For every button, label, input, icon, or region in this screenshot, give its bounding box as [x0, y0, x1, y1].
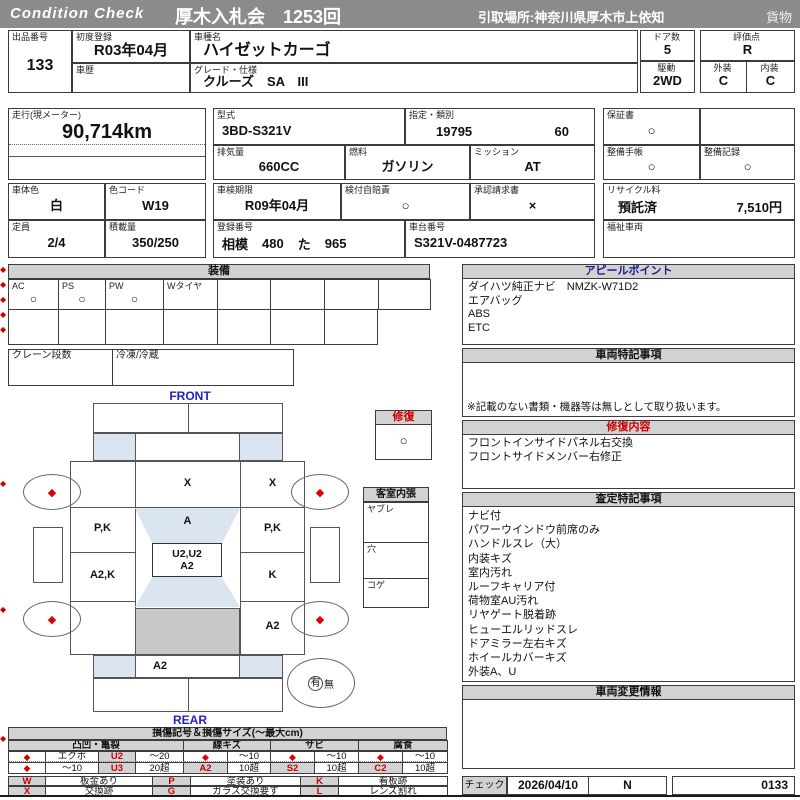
fuel-cell: 燃料 ガソリン: [345, 145, 470, 180]
recycle-amount: 7,510円: [736, 197, 782, 216]
registration-kana: た: [298, 234, 311, 253]
text-line: エアバッグ: [468, 295, 789, 309]
check-code: N: [588, 777, 666, 794]
inspection-expiry-value: R09年04月: [214, 195, 340, 219]
registration-number-label: 登録番号: [214, 221, 404, 232]
equipment-cell-empty: [271, 310, 325, 345]
text-line: フロントインサイドパネル右交換: [468, 437, 789, 451]
text-line: ルーフキャリア付: [468, 580, 789, 594]
hood-corner-left: [94, 434, 136, 460]
fuel-label: 燃料: [346, 146, 469, 157]
interior-lining-title: 客室内張: [364, 488, 428, 502]
grade-value: クルーズ SA III: [191, 75, 637, 92]
legend-code-u2: U2: [99, 751, 136, 762]
equipment-cell-empty: [218, 310, 271, 345]
cargo-area-shaded: [135, 608, 240, 655]
appeal-points-title: アピールポイント: [463, 265, 794, 279]
right-rear-panel-mark: K: [240, 569, 305, 581]
registration-class: 480: [262, 236, 284, 251]
change-info-title: 車両変更情報: [463, 686, 794, 700]
drive-value: 2WD: [641, 73, 694, 92]
spare-tire-yes: 有: [308, 676, 323, 691]
roof-front-mark: A: [135, 515, 240, 527]
chassis-number-label: 車台番号: [406, 221, 594, 232]
capacity-cell: 定員 2/4: [8, 220, 105, 258]
load-capacity-label: 積載量: [106, 221, 205, 232]
equipment-cell-wtire: Wタイヤ: [164, 279, 218, 310]
legend-group-dents: 凸凹・亀裂: [9, 740, 184, 751]
exterior-grade-value: C: [701, 73, 746, 92]
title-bar: Condition Check 厚木入札会 1253回 引取場所:神奈川県厚木市…: [0, 0, 800, 28]
load-capacity-value: 350/250: [106, 232, 205, 257]
registration-digits: 965: [325, 236, 347, 251]
inspection-expiry-cell: 車検期限 R09年04月: [213, 183, 341, 220]
interior-grade-label: 内装: [747, 62, 794, 73]
equipment-label-ac: AC: [9, 280, 58, 291]
equipment-cell-empty: [59, 310, 106, 345]
change-info-panel: 車両変更情報: [462, 685, 795, 769]
equipment-cell-pw: PW ○: [106, 279, 164, 310]
left-front-door-mark: P,K: [70, 522, 135, 534]
body-hline: [70, 552, 135, 553]
text-line: ハンドルスレ（大）: [468, 537, 789, 551]
fridge-cell: 冷凍/冷蔵: [112, 349, 294, 386]
repair-details-panel: 修復内容 フロントインサイドパネル右交換フロントサイドメンバー右修正: [462, 420, 795, 489]
crane-cell: クレーン段数: [8, 349, 113, 386]
windshield-mark: X: [135, 477, 240, 489]
equipment-cell-empty: [271, 279, 325, 310]
score-cell: 評価点 R: [700, 30, 795, 61]
equipment-cell-empty: [325, 279, 379, 310]
text-line: ABS: [468, 308, 789, 322]
fridge-label: 冷凍/冷蔵: [113, 350, 293, 361]
equipment-cell-empty: [325, 310, 378, 345]
drive-label: 駆動: [641, 62, 694, 73]
wheel-damage-mark: ◆: [48, 486, 56, 499]
wheel-front-right: ◆: [291, 474, 349, 510]
class-value-1: 19795: [436, 124, 472, 139]
bottom-divider-line: [0, 795, 800, 797]
legend-group-rust: サビ: [271, 740, 359, 751]
recycle-fee-values: 預託済 7,510円: [604, 195, 794, 219]
first-registration-cell: 初度登録 R03年04月: [72, 30, 190, 63]
first-registration-label: 初度登録: [73, 31, 189, 42]
equipment-label-wtire: Wタイヤ: [164, 280, 217, 291]
maintenance-book-label: 整備手帳: [604, 146, 699, 157]
rear-bumper: [93, 678, 283, 712]
approval-request-label: 承認請求書: [471, 184, 594, 195]
legend-size-value: 10超: [315, 762, 359, 774]
warranty-value: ○: [604, 120, 699, 144]
displacement-cell: 排気量 660CC: [213, 145, 345, 180]
load-capacity-cell: 積載量 350/250: [105, 220, 206, 258]
wheel-rear-left: ◆: [23, 601, 81, 637]
transmission-label: ミッション: [471, 146, 594, 157]
legend-code-c2: C2: [359, 762, 403, 774]
equipment-cell-ps: PS ○: [59, 279, 106, 310]
legend-title: 損傷記号＆損傷サイズ(〜最大cm): [152, 728, 303, 739]
drive-cell: 駆動 2WD: [640, 61, 695, 93]
body-hline: [240, 601, 305, 602]
roof-mark-2: A2: [153, 560, 221, 572]
legend-size-value: 20超: [136, 762, 184, 774]
inspection-expiry-label: 車検期限: [214, 184, 340, 195]
appeal-points-list: ダイハツ純正ナビ NMZK-W71D2エアバッグABSETC: [463, 279, 794, 337]
legend-diamond-icon: ◆: [271, 751, 315, 762]
text-line: ナビ付: [468, 509, 789, 523]
interior-lining-burn-label: コゲ: [364, 579, 428, 590]
mileage-cell: 走行(現メーター) 90,714km: [8, 108, 206, 180]
text-line: 外装A、U: [468, 665, 789, 679]
insurance-cell: 検付自賠責 ○: [341, 183, 470, 220]
body-color-cell: 車体色 白: [8, 183, 105, 220]
legend-size-value: 〜10: [315, 751, 359, 762]
legend-group-corrosion: 腐食: [359, 740, 448, 751]
front-label: FRONT: [145, 389, 235, 403]
equipment-cell-empty: [106, 310, 164, 345]
capacity-value: 2/4: [9, 232, 104, 257]
interior-lining-cell: 穴: [364, 542, 428, 578]
doors-value: 5: [641, 42, 694, 60]
legend-size-value: 〜10: [46, 762, 99, 774]
body-hline: [240, 507, 305, 508]
legend-symbol-row-1: W 板金あり P 塗装あり K 看板跡: [8, 776, 448, 786]
text-line: 内装キズ: [468, 552, 789, 566]
margin-mark-icon: ◆: [0, 480, 6, 488]
assessment-notes-title: 査定特記事項: [463, 493, 794, 507]
exterior-grade-cell: 外装 C: [700, 61, 747, 93]
equipment-mark-ac: ○: [9, 292, 58, 306]
auction-title: 厚木入札会 1253回: [175, 3, 341, 29]
equipment-cell-empty: [164, 310, 218, 345]
margin-mark-icon: ◆: [0, 296, 6, 304]
equipment-cell-ac: AC ○: [9, 279, 59, 310]
legend-desc-sign: 看板跡: [339, 776, 448, 786]
text-line: パワーウインドウ前席のみ: [468, 523, 789, 537]
spare-tire-no: 無: [324, 676, 334, 691]
mileage-label: 走行(現メーター): [9, 109, 205, 120]
recycle-fee-cell: リサイクル料 預託済 7,510円: [603, 183, 795, 220]
rear-corner-right: [239, 656, 282, 677]
fuel-value: ガソリン: [346, 157, 469, 179]
equipment-row-1: AC ○ PS ○ PW ○ Wタイヤ: [8, 279, 431, 310]
text-line: 荷物室AU汚れ: [468, 594, 789, 608]
interior-lining-hole-label: 穴: [364, 543, 428, 554]
mirror-right: [310, 527, 340, 583]
legend-code-p: P: [153, 776, 191, 786]
equipment-label-pw: PW: [106, 280, 163, 291]
wheel-rear-right: ◆: [291, 601, 349, 637]
legend-diamond-icon: ◆: [9, 751, 46, 762]
type-code-label: 型式: [214, 109, 404, 120]
score-label: 評価点: [701, 31, 794, 42]
model-label: 車種名: [191, 31, 637, 42]
legend-diamond-icon: ◆: [184, 751, 228, 762]
color-code-value: W19: [106, 195, 205, 219]
assessment-notes-list: ナビ付パワーウインドウ前席のみハンドルスレ（大）内装キズ室内汚れルーフキャリア付…: [463, 507, 794, 681]
type-code-cell: 型式 3BD-S321V: [213, 108, 405, 145]
legend-group-scratch: 線キズ: [184, 740, 271, 751]
score-value: R: [701, 42, 794, 60]
check-date: 2026/04/10: [508, 777, 588, 794]
roof-panel-box: U2,U2 A2: [152, 543, 222, 577]
vehicle-notes-title: 車両特記事項: [463, 349, 794, 363]
legend-diamond-icon: ◆: [9, 762, 46, 774]
equipment-label-ps: PS: [59, 280, 105, 291]
legend-group-row: 凸凹・亀裂 線キズ サビ 腐食: [8, 740, 448, 751]
body-hline: [70, 507, 135, 508]
lot-number-cell: 出品番号 133: [8, 30, 72, 93]
margin-mark-icon: ◆: [0, 281, 6, 289]
text-line: リヤゲート脱着跡: [468, 608, 789, 622]
model-cell: 車種名 ハイゼットカーゴ: [190, 30, 638, 63]
type-code-value: 3BD-S321V: [214, 120, 404, 144]
body-hline: [135, 507, 240, 508]
legend-code-u3: U3: [99, 762, 136, 774]
text-line: ホイールカバーキズ: [468, 651, 789, 665]
class-value-2: 60: [555, 124, 569, 139]
insurance-value: ○: [342, 195, 469, 219]
color-code-cell: 色コード W19: [105, 183, 206, 220]
registration-number-cell: 登録番号 相模 480 た 965: [213, 220, 405, 258]
class-label: 指定・類別: [406, 109, 594, 120]
maintenance-book-cell: 整備手帳 ○: [603, 145, 700, 180]
appeal-points-panel: アピールポイント ダイハツ純正ナビ NMZK-W71D2エアバッグABSETC: [462, 264, 795, 345]
wheel-damage-mark: ◆: [316, 613, 324, 626]
approval-request-value: ×: [471, 195, 594, 219]
interior-grade-value: C: [747, 73, 794, 92]
grade-label: グレード・仕様: [191, 64, 637, 75]
text-line: ドアミラー左右キズ: [468, 637, 789, 651]
grade-cell: グレード・仕様 クルーズ SA III: [190, 63, 638, 93]
margin-mark-icon: ◆: [0, 311, 6, 319]
mileage-empty-area: [9, 156, 205, 179]
doors-label: ドア数: [641, 31, 694, 42]
transmission-value: AT: [471, 157, 594, 179]
margin-mark-icon: ◆: [0, 606, 6, 614]
warranty-label: 保証書: [604, 109, 699, 120]
model-value: ハイゼットカーゴ: [191, 42, 637, 62]
legend-desc-sheetmetal: 板金あり: [46, 776, 153, 786]
legend-size-value: 〜10: [228, 751, 271, 762]
insurance-label: 検付自賠責: [342, 184, 469, 195]
text-line: ダイハツ純正ナビ NMZK-W71D2: [468, 281, 789, 295]
wheel-damage-mark: ◆: [316, 486, 324, 499]
mileage-value: 90,714km: [9, 120, 205, 144]
registration-number-value: 相模 480 た 965: [214, 232, 404, 257]
repair-flag-box: 修復 ○: [375, 410, 432, 460]
equipment-cell-empty: [9, 310, 59, 345]
interior-lining-cell: ヤブレ: [364, 502, 428, 542]
right-front-door-mark: P,K: [240, 522, 305, 534]
legend-code-w: W: [9, 776, 46, 786]
legend-size-row-2: ◆ 〜10 U3 20超 A2 10超 S2 10超 C2 10超: [8, 762, 448, 774]
interior-lining-cell: コゲ: [364, 578, 428, 608]
margin-mark-icon: ◆: [0, 266, 6, 274]
assessment-notes-panel: 査定特記事項 ナビ付パワーウインドウ前席のみハンドルスレ（大）内装キズ室内汚れル…: [462, 492, 795, 682]
repair-flag-label: 修復: [376, 411, 431, 425]
warranty-cell: 保証書 ○: [603, 108, 700, 145]
interior-lining-tear-label: ヤブレ: [364, 503, 428, 514]
spare-tire-indicator: 有 無: [287, 658, 355, 708]
maintenance-record-cell: 整備記録 ○: [700, 145, 795, 180]
doors-cell: ドア数 5: [640, 30, 695, 61]
check-label-cell: チェック: [462, 776, 507, 795]
vehicle-notes-footnote: ※記載のない書類・機器等は無しとして取り扱います。: [467, 399, 726, 414]
rear-gate-mark: A2: [120, 660, 200, 672]
legend-dimple-label: エクボ: [46, 751, 99, 762]
interior-grade-cell: 内装 C: [746, 61, 795, 93]
legend-code-s2: S2: [271, 762, 315, 774]
maintenance-record-label: 整備記録: [701, 146, 794, 157]
roof-mark-1: U2,U2: [153, 548, 221, 560]
legend-size-value: 10超: [403, 762, 448, 774]
check-number: 0133: [673, 777, 794, 794]
welfare-vehicle-label: 福祉車両: [604, 221, 794, 232]
condition-check-sheet: Condition Check 厚木入札会 1253回 引取場所:神奈川県厚木市…: [0, 0, 800, 800]
rear-label: REAR: [145, 713, 235, 727]
crane-label: クレーン段数: [9, 350, 112, 361]
roof-marks: U2,U2 A2: [153, 544, 221, 572]
wheel-front-left: ◆: [23, 474, 81, 510]
text-line: フロントサイドメンバー右修正: [468, 451, 789, 465]
pickup-location: 引取場所:神奈川県厚木市上依知: [478, 7, 664, 26]
chassis-number-value: S321V-0487723: [406, 232, 594, 257]
equipment-cell-empty: [379, 279, 431, 310]
legend-size-row-1: ◆ エクボ U2 〜20 ◆ 〜10 ◆ 〜10 ◆ 〜10: [8, 751, 448, 762]
margin-mark-icon: ◆: [0, 735, 6, 743]
maintenance-record-value: ○: [701, 157, 794, 179]
front-bumper: [93, 403, 283, 433]
history-label: 車歴: [73, 64, 189, 75]
interior-lining-box: 客室内張 ヤブレ 穴 コゲ: [363, 487, 429, 608]
legend-size-value: 10超: [228, 762, 271, 774]
legend-code-a2: A2: [184, 762, 228, 774]
equipment-cell-empty: [218, 279, 271, 310]
body-color-label: 車体色: [9, 184, 104, 195]
equipment-mark-pw: ○: [106, 292, 163, 306]
body-hline: [240, 552, 305, 553]
legend-size-value: 〜20: [136, 751, 184, 762]
lot-number-value: 133: [9, 42, 71, 92]
history-cell: 車歴: [72, 63, 190, 93]
legend-size-value: 〜10: [403, 751, 448, 762]
chassis-number-cell: 車台番号 S321V-0487723: [405, 220, 595, 258]
wheel-damage-mark: ◆: [48, 613, 56, 626]
lot-number-label: 出品番号: [9, 31, 71, 42]
check-label: チェック: [463, 777, 506, 794]
color-code-label: 色コード: [106, 184, 205, 195]
equipment-mark-ps: ○: [59, 292, 105, 306]
equipment-header: 装備: [8, 264, 430, 279]
hood-corner-right: [239, 434, 282, 460]
rear-bumper-divider: [188, 679, 189, 711]
displacement-label: 排気量: [214, 146, 344, 157]
hood-center: [136, 434, 239, 460]
legend-diamond-icon: ◆: [359, 751, 403, 762]
repair-flag-value: ○: [376, 425, 431, 448]
text-line: 室内汚れ: [468, 566, 789, 580]
legend-desc-paint: 塗装あり: [191, 776, 301, 786]
welfare-vehicle-cell: 福祉車両: [603, 220, 795, 258]
hood-band: [93, 433, 283, 461]
mirror-left: [33, 527, 63, 583]
margin-mark-icon: ◆: [0, 326, 6, 334]
recycle-status: 預託済: [618, 197, 657, 216]
approval-request-cell: 承認請求書 ×: [470, 183, 595, 220]
equipment-row-2: [8, 310, 378, 345]
legend-code-k: K: [301, 776, 339, 786]
transmission-cell: ミッション AT: [470, 145, 595, 180]
body-color-value: 白: [9, 195, 104, 219]
left-rear-panel-mark: A2,K: [70, 569, 135, 581]
empty-cell: [700, 108, 795, 145]
repair-details-list: フロントインサイドパネル右交換フロントサイドメンバー右修正: [463, 435, 794, 466]
registration-area: 相模: [222, 234, 248, 253]
capacity-label: 定員: [9, 221, 104, 232]
displacement-value: 660CC: [214, 157, 344, 179]
text-line: ヒューエルリッドスレ: [468, 623, 789, 637]
front-bumper-divider: [188, 404, 189, 432]
first-registration-value: R03年04月: [73, 42, 189, 62]
repair-details-title: 修復内容: [463, 421, 794, 435]
recycle-fee-label: リサイクル料: [604, 184, 794, 195]
class-cell: 指定・類別 19795 60: [405, 108, 595, 145]
check-date-cell: 2026/04/10 N: [507, 776, 667, 795]
mileage-divider-dotted: [9, 144, 205, 156]
vehicle-notes-panel: 車両特記事項 ※記載のない書類・機器等は無しとして取り扱います。: [462, 348, 795, 417]
equipment-title: 装備: [208, 265, 230, 277]
maintenance-book-value: ○: [604, 157, 699, 179]
text-line: ETC: [468, 322, 789, 336]
legend-header: 損傷記号＆損傷サイズ(〜最大cm): [8, 727, 447, 740]
vehicle-category: 貨物: [766, 7, 792, 26]
body-hline: [70, 601, 135, 602]
brand-logo: Condition Check: [10, 5, 144, 22]
check-number-cell: 0133: [672, 776, 795, 795]
class-values: 19795 60: [406, 120, 594, 144]
exterior-grade-label: 外装: [701, 62, 746, 73]
